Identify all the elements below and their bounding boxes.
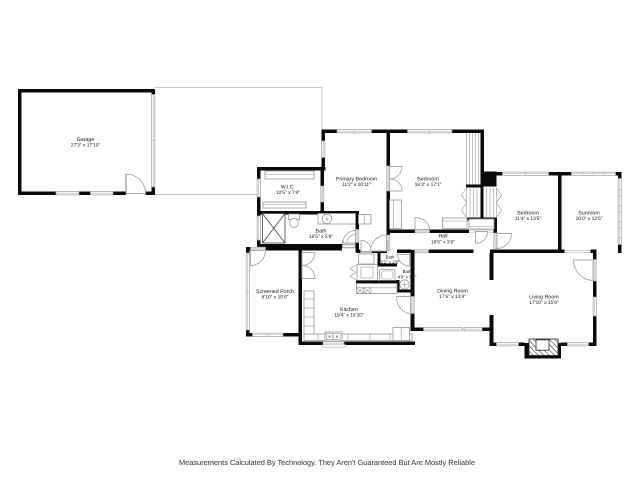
- svg-text:11'2" x 20'11": 11'2" x 20'11": [342, 182, 371, 188]
- svg-text:8'10" x 15'6": 8'10" x 15'6": [262, 294, 289, 300]
- svg-text:16'3" x 17'1": 16'3" x 17'1": [415, 182, 442, 188]
- svg-text:Bath: Bath: [316, 228, 327, 234]
- svg-text:Bedroom: Bedroom: [417, 176, 439, 182]
- svg-text:Measurements Calculated By Tec: Measurements Calculated By Technology. T…: [179, 458, 475, 467]
- svg-text:Garage: Garage: [77, 137, 95, 143]
- svg-text:17'6" x 13'4": 17'6" x 13'4": [439, 294, 466, 300]
- svg-text:Living Room: Living Room: [529, 295, 559, 301]
- svg-text:4'9" x 5'7": 4'9" x 5'7": [398, 275, 417, 280]
- svg-text:Hall: Hall: [438, 234, 447, 240]
- svg-text:W.I.C.: W.I.C.: [281, 184, 295, 190]
- svg-text:Bath: Bath: [403, 269, 412, 274]
- svg-text:17'10" x 15'9": 17'10" x 15'9": [529, 300, 559, 306]
- svg-text:Bedroom: Bedroom: [517, 210, 539, 216]
- svg-text:18'6" x 3'6": 18'6" x 3'6": [431, 239, 455, 245]
- svg-text:10'0" x 13'5": 10'0" x 13'5": [576, 216, 603, 222]
- svg-text:11'4" x 13'5": 11'4" x 13'5": [515, 216, 542, 222]
- svg-text:10'5" x 7'4": 10'5" x 7'4": [276, 190, 300, 196]
- svg-text:Sunroom: Sunroom: [578, 210, 600, 216]
- svg-text:Screened Porch: Screened Porch: [256, 289, 294, 295]
- svg-text:16'5" x 5'9": 16'5" x 5'9": [309, 234, 333, 240]
- svg-text:Kitchen: Kitchen: [340, 307, 358, 313]
- svg-text:Primary Bedroom: Primary Bedroom: [336, 176, 378, 182]
- svg-text:Dining Room: Dining Room: [437, 288, 468, 294]
- svg-text:1'1" x 2'8": 1'1" x 2'8": [381, 260, 400, 265]
- svg-text:19'4" x 16'10": 19'4" x 16'10": [334, 313, 364, 319]
- svg-text:27'3" x 17'10": 27'3" x 17'10": [71, 143, 101, 149]
